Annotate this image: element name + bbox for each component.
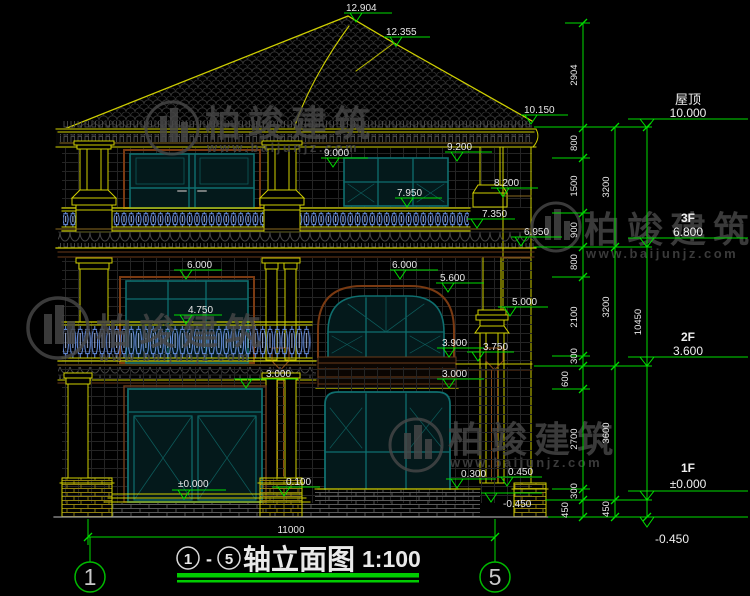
- elevation-value: 3.000: [442, 369, 467, 380]
- elevation-value: 10.150: [524, 105, 555, 116]
- overall-width-value: 11000: [277, 525, 305, 536]
- level-roof: 屋顶 10.000: [628, 92, 748, 128]
- dim-value: 3200: [601, 296, 612, 317]
- dim-value: 1500: [569, 175, 580, 196]
- f1-porch-column: [64, 373, 92, 478]
- dim-value: 3600: [601, 422, 612, 443]
- level-label: 1F: [681, 461, 695, 475]
- watermark-url: www.baijunjz.com: [98, 349, 251, 364]
- dim-value: 800: [569, 254, 580, 270]
- title-underline-thin: [177, 580, 419, 583]
- pedestal-left: [60, 478, 114, 517]
- title-dash: -: [206, 549, 212, 569]
- elevation-value: 5.000: [512, 297, 537, 308]
- title-underline-thick: [177, 573, 419, 578]
- band-cornice: [56, 229, 536, 257]
- elevation-value: -0.450: [503, 499, 532, 510]
- elevation-value: 5.600: [440, 273, 465, 284]
- elevation-value: 6.950: [524, 227, 549, 238]
- dim-value: 450: [601, 501, 612, 517]
- level-value: 3.600: [673, 344, 703, 358]
- f3-left-window: [124, 150, 260, 208]
- f1-right-window: [318, 392, 458, 489]
- title-axis-from: 1: [184, 551, 192, 568]
- axis-number: 1: [84, 564, 97, 590]
- watermark-url: www.baijunjz.com: [585, 246, 738, 261]
- elevation-value: ±0.000: [178, 479, 209, 490]
- dim-value: 800: [569, 135, 580, 151]
- plinth-right: [315, 489, 480, 517]
- level-value: ±0.000: [670, 477, 707, 491]
- dim-value: 2100: [569, 306, 580, 327]
- elevation-value: 9.000: [324, 148, 349, 159]
- elevation-value: 8.200: [494, 178, 519, 189]
- elevation-value: 6.000: [392, 260, 417, 271]
- f3-right-window: [344, 158, 448, 206]
- elevation-value: 6.000: [187, 260, 212, 271]
- level-label: 屋顶: [675, 92, 701, 107]
- drawing-canvas: 柏竣建筑 www.baijunjz.com 柏竣建筑 www.baijunjz.…: [0, 0, 750, 596]
- elevation-value: 3.900: [442, 338, 467, 349]
- elevation-value: 4.750: [188, 305, 213, 316]
- elevation-value: 3.750: [483, 342, 508, 353]
- watermark-brand: 柏竣建筑: [205, 103, 377, 144]
- watermark-brand: 柏竣建筑: [448, 419, 620, 460]
- elevation-marker-7350: 7.350: [467, 209, 515, 228]
- elevation-value: 12.904: [346, 3, 377, 14]
- level-1f: 1F ±0.000: [628, 461, 748, 500]
- watermark-brand: 柏竣建筑: [584, 209, 750, 250]
- elevation-value: 3.000: [266, 369, 291, 380]
- drawing-title: 轴立面图: [243, 543, 355, 575]
- elevation-value: 7.950: [397, 188, 422, 199]
- level-value: 6.800: [673, 225, 703, 239]
- elevation-value: 9.200: [447, 142, 472, 153]
- dim-value: 10450: [633, 309, 644, 335]
- drawing-scale: 1:100: [362, 546, 421, 572]
- axis-number: 5: [489, 564, 502, 590]
- dim-value: 2904: [569, 64, 580, 85]
- elevation-value: 7.350: [482, 209, 507, 220]
- title-block: 1 - 5 轴立面图 1:100: [177, 543, 421, 583]
- bottom-dimension: 11000: [84, 519, 499, 545]
- level-2f: 2F 3.600: [628, 330, 748, 366]
- axis-1: 1: [75, 537, 105, 592]
- cad-elevation-drawing: 柏竣建筑 www.baijunjz.com 柏竣建筑 www.baijunjz.…: [0, 0, 750, 596]
- watermark-right: 柏竣建筑 www.baijunjz.com: [532, 203, 750, 261]
- elevation-value: 0.100: [286, 477, 311, 488]
- title-axis-to: 5: [225, 551, 233, 568]
- level-label: 3F: [681, 211, 695, 225]
- level-ground: -0.450: [628, 517, 748, 546]
- dim-value: 450: [560, 502, 571, 518]
- dim-value: 300: [569, 348, 580, 364]
- level-value: 10.000: [670, 106, 707, 120]
- dim-value: 600: [560, 371, 571, 387]
- dim-value: 3200: [601, 176, 612, 197]
- level-value: -0.450: [655, 532, 689, 546]
- elevation-value: 0.450: [508, 467, 533, 478]
- axis-5: 5: [480, 537, 510, 592]
- dim-value: 300: [569, 483, 580, 499]
- elevation-value: 0.300: [461, 469, 486, 480]
- elevation-value: 12.355: [386, 27, 417, 38]
- dim-value: 900: [569, 222, 580, 238]
- level-label: 2F: [681, 330, 695, 344]
- dim-value: 2700: [569, 428, 580, 449]
